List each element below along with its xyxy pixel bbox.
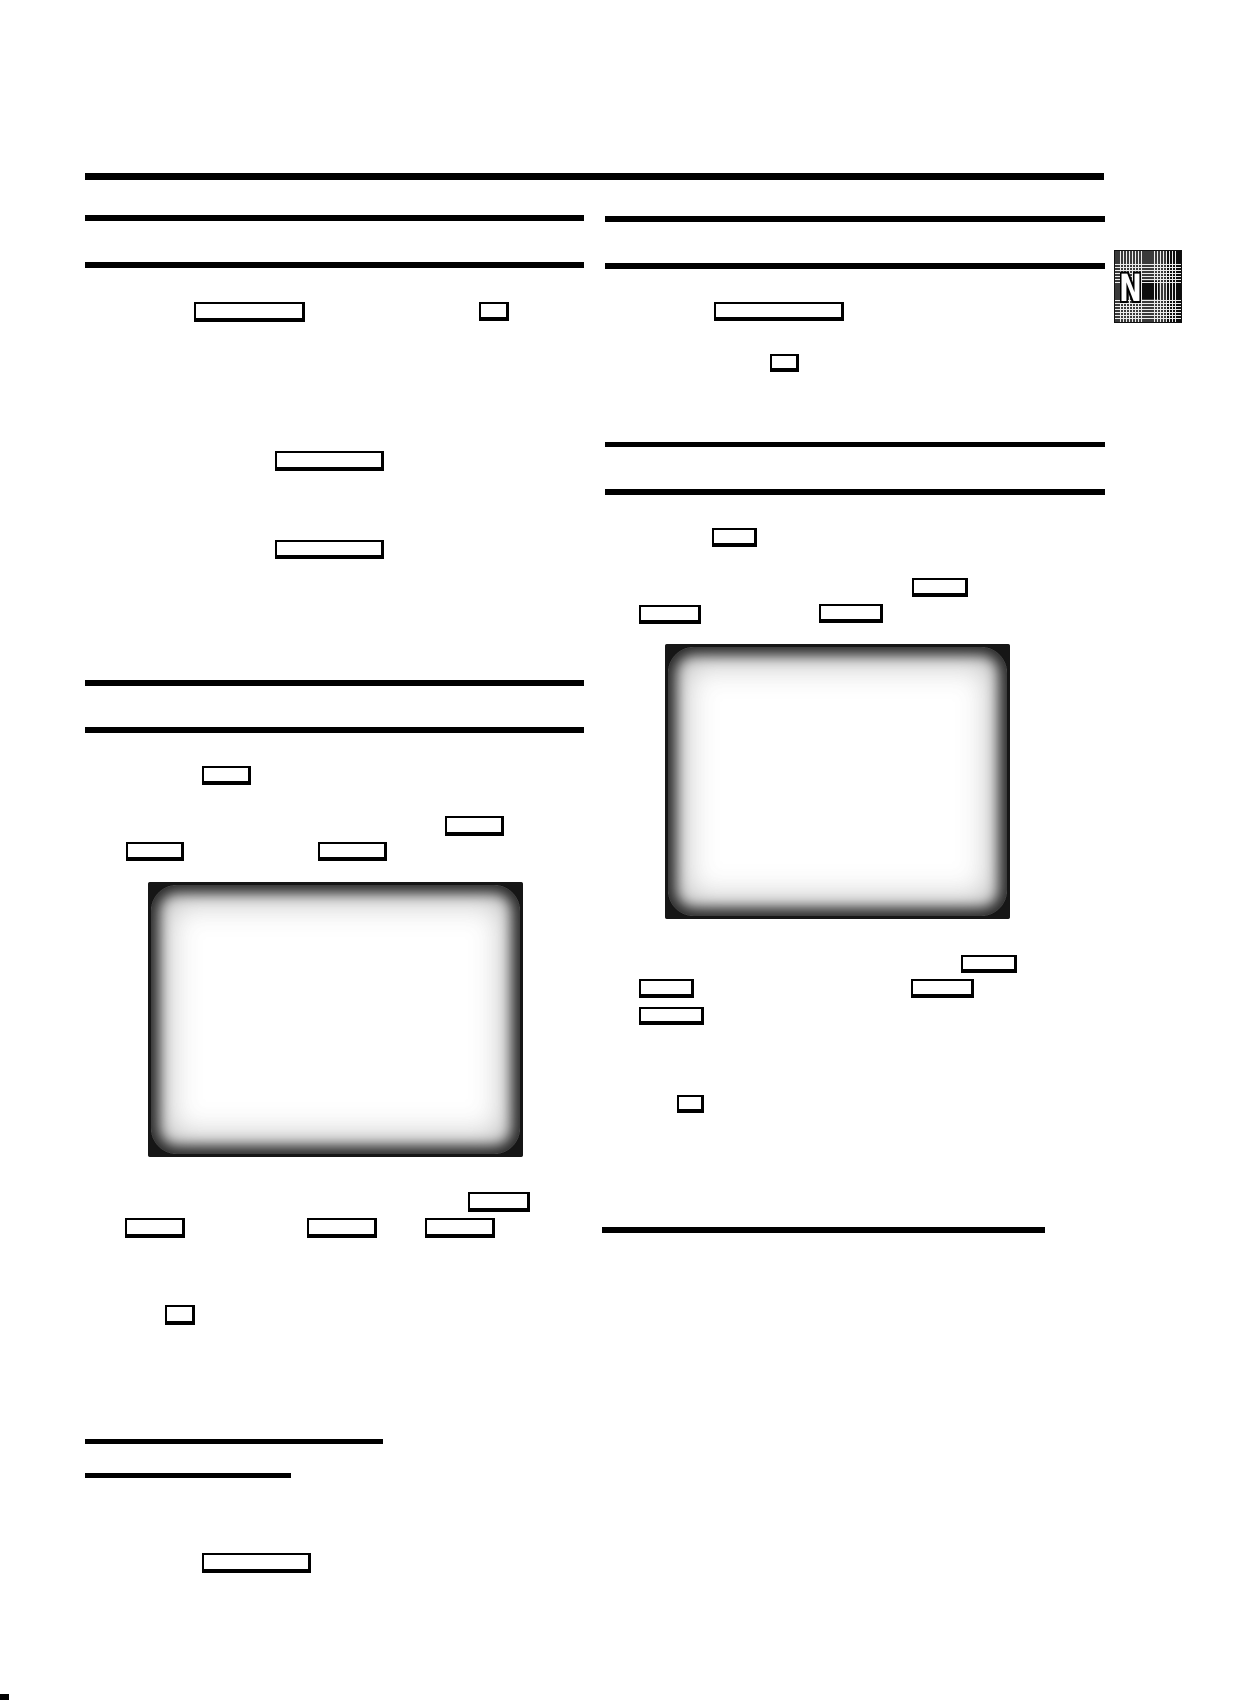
section-tab-badge: N [1114, 250, 1182, 323]
left-tv-screen-face [151, 885, 520, 1154]
key-placeholder-right-key-9 [639, 1007, 704, 1025]
key-placeholder-right-key-3 [912, 578, 968, 597]
key-placeholder-left-key-5 [445, 816, 504, 836]
key-placeholder-left-wide-key-3 [275, 540, 384, 559]
key-placeholder-right-small-key-2 [677, 1095, 704, 1113]
left-heading1-rule-bottom [85, 262, 584, 268]
key-placeholder-right-key-7 [639, 979, 694, 998]
key-placeholder-left-wide-key-2 [275, 451, 384, 471]
left-heading2-rule-top [85, 680, 584, 686]
right-tv-screen [665, 644, 1010, 919]
top-rule [85, 173, 1104, 180]
key-placeholder-left-key-9 [125, 1218, 185, 1238]
corner-print-mark [0, 1694, 9, 1700]
key-placeholder-left-key-11 [425, 1218, 495, 1238]
key-placeholder-left-key-8 [468, 1192, 530, 1212]
key-placeholder-right-small-key-1 [770, 354, 799, 372]
key-placeholder-right-key-8 [911, 979, 974, 998]
key-placeholder-left-wide-key-1 [194, 302, 305, 322]
key-placeholder-right-key-6 [961, 955, 1017, 973]
key-placeholder-left-small-key-1 [479, 302, 509, 321]
right-heading2-rule-top [605, 442, 1105, 447]
key-placeholder-left-key-6 [126, 842, 184, 861]
left-heading2-rule-bottom [85, 727, 584, 733]
key-placeholder-left-key-7 [318, 842, 387, 861]
bottom-left-rule-short [85, 1473, 291, 1478]
right-heading2-rule-bottom [605, 489, 1105, 495]
key-placeholder-left-small-key-2 [165, 1305, 195, 1325]
left-tv-screen [148, 882, 523, 1157]
manual-page: N [0, 0, 1247, 1701]
key-placeholder-left-wide-key-4 [202, 1553, 311, 1573]
right-section-end-rule [602, 1227, 1045, 1233]
key-placeholder-right-wide-key-1 [714, 302, 844, 321]
left-heading1-rule-top [85, 215, 584, 221]
key-placeholder-left-key-10 [307, 1218, 377, 1238]
section-tab-letter: N [1119, 270, 1142, 307]
right-heading1-rule-top [605, 216, 1105, 222]
key-placeholder-right-key-4 [639, 605, 701, 624]
bottom-left-rule-long [85, 1439, 383, 1444]
key-placeholder-left-key-4 [202, 766, 251, 785]
right-heading1-rule-bottom [605, 263, 1105, 269]
key-placeholder-right-key-2 [712, 528, 757, 547]
right-tv-screen-face [668, 647, 1007, 916]
key-placeholder-right-key-5 [819, 604, 883, 623]
